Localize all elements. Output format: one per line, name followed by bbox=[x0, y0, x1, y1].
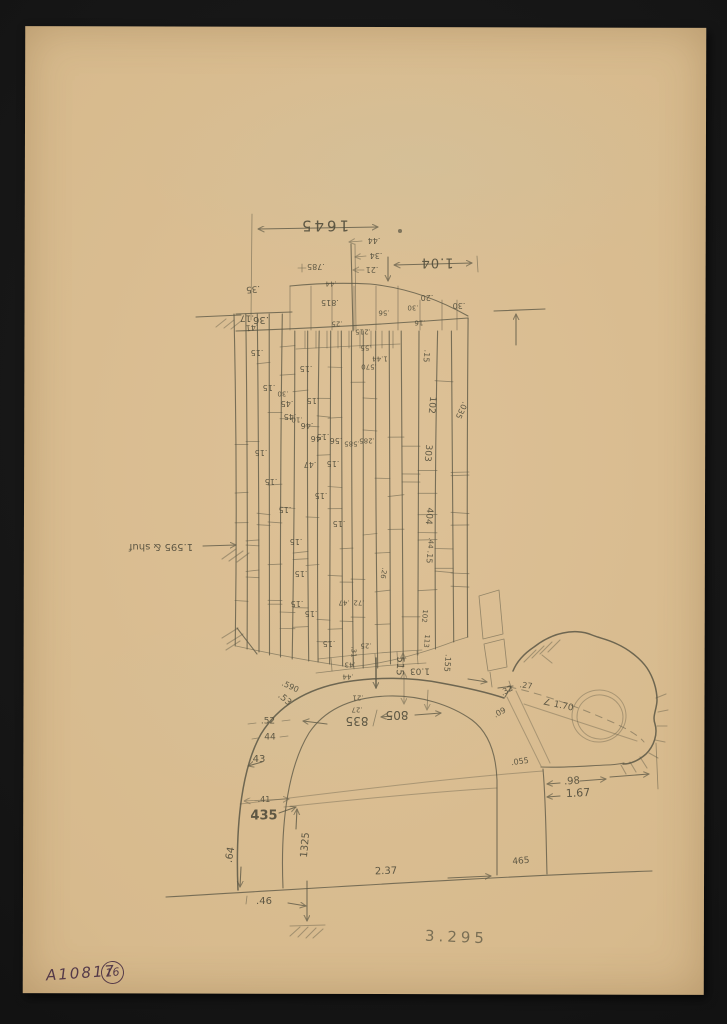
masonry-grid bbox=[234, 286, 469, 668]
tunnel-arch bbox=[166, 678, 652, 897]
ground-line bbox=[166, 871, 652, 897]
rock-cavity bbox=[509, 632, 668, 774]
scan-background: 16451.04.44.34.21.785.35.41.17.36.815.44… bbox=[0, 0, 727, 1024]
dimension-arrows bbox=[196, 214, 658, 938]
pencil-drawing bbox=[0, 0, 727, 1024]
grid-outline bbox=[236, 244, 507, 673]
plate-number: 3.295 bbox=[425, 927, 489, 948]
sheet-number: 16 bbox=[105, 965, 120, 979]
dashed-leader bbox=[509, 687, 644, 742]
